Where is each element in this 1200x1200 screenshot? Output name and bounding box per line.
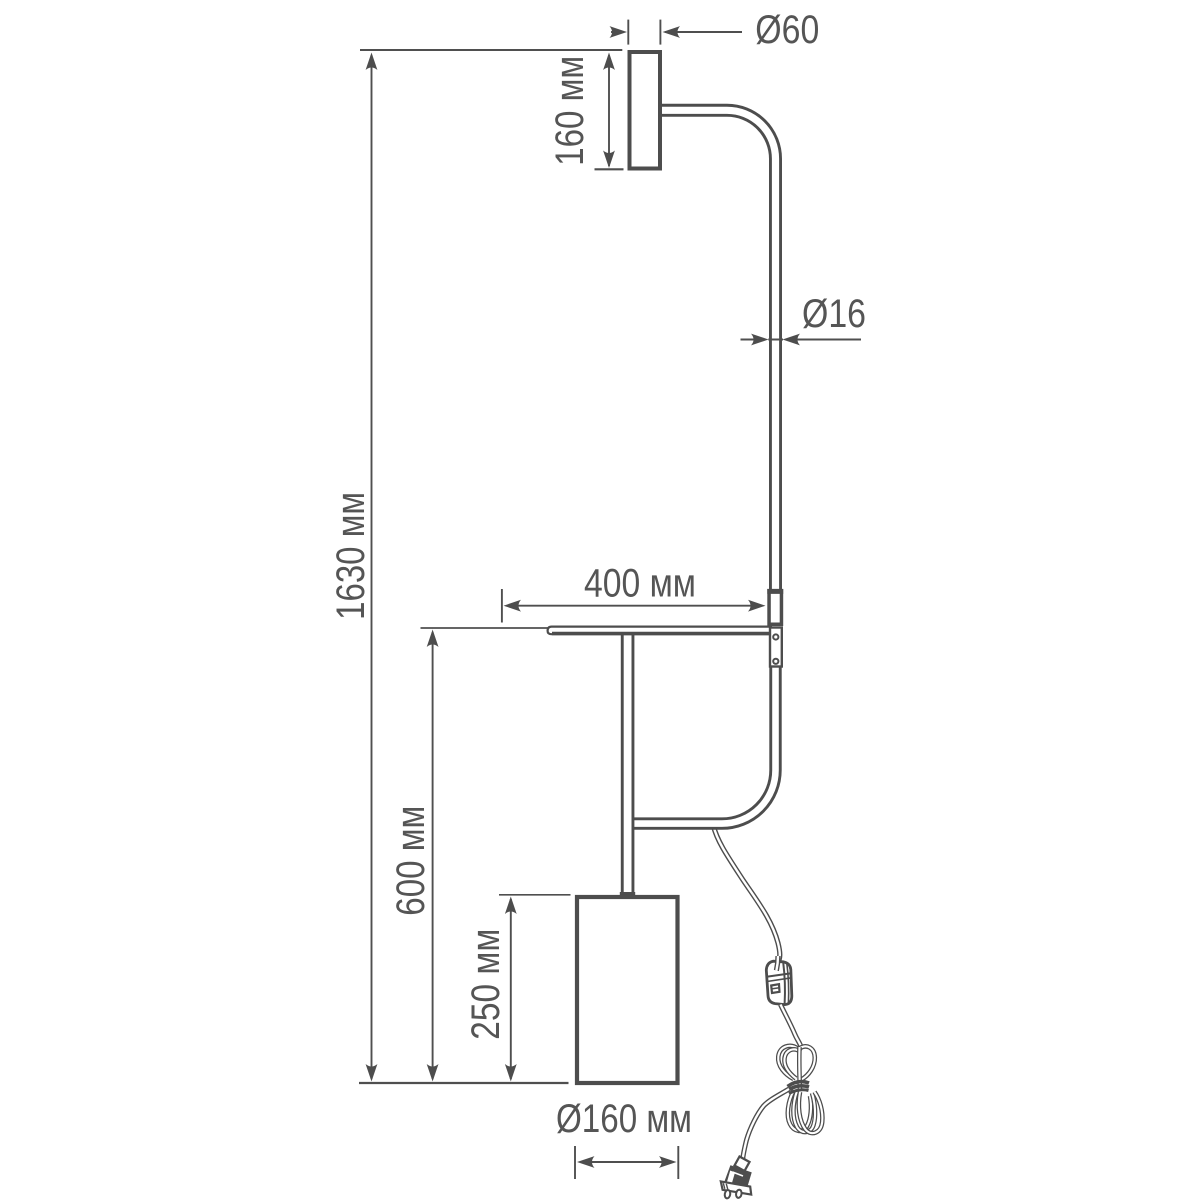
svg-text:160 мм: 160 мм bbox=[548, 56, 592, 166]
svg-text:Ø16: Ø16 bbox=[802, 292, 866, 336]
svg-text:250 мм: 250 мм bbox=[464, 929, 508, 1040]
svg-text:Ø160 мм: Ø160 мм bbox=[556, 1097, 692, 1141]
svg-text:1630 мм: 1630 мм bbox=[329, 492, 373, 620]
svg-text:400 мм: 400 мм bbox=[584, 562, 696, 606]
svg-text:Ø60: Ø60 bbox=[755, 8, 819, 52]
svg-text:600 мм: 600 мм bbox=[389, 806, 433, 916]
